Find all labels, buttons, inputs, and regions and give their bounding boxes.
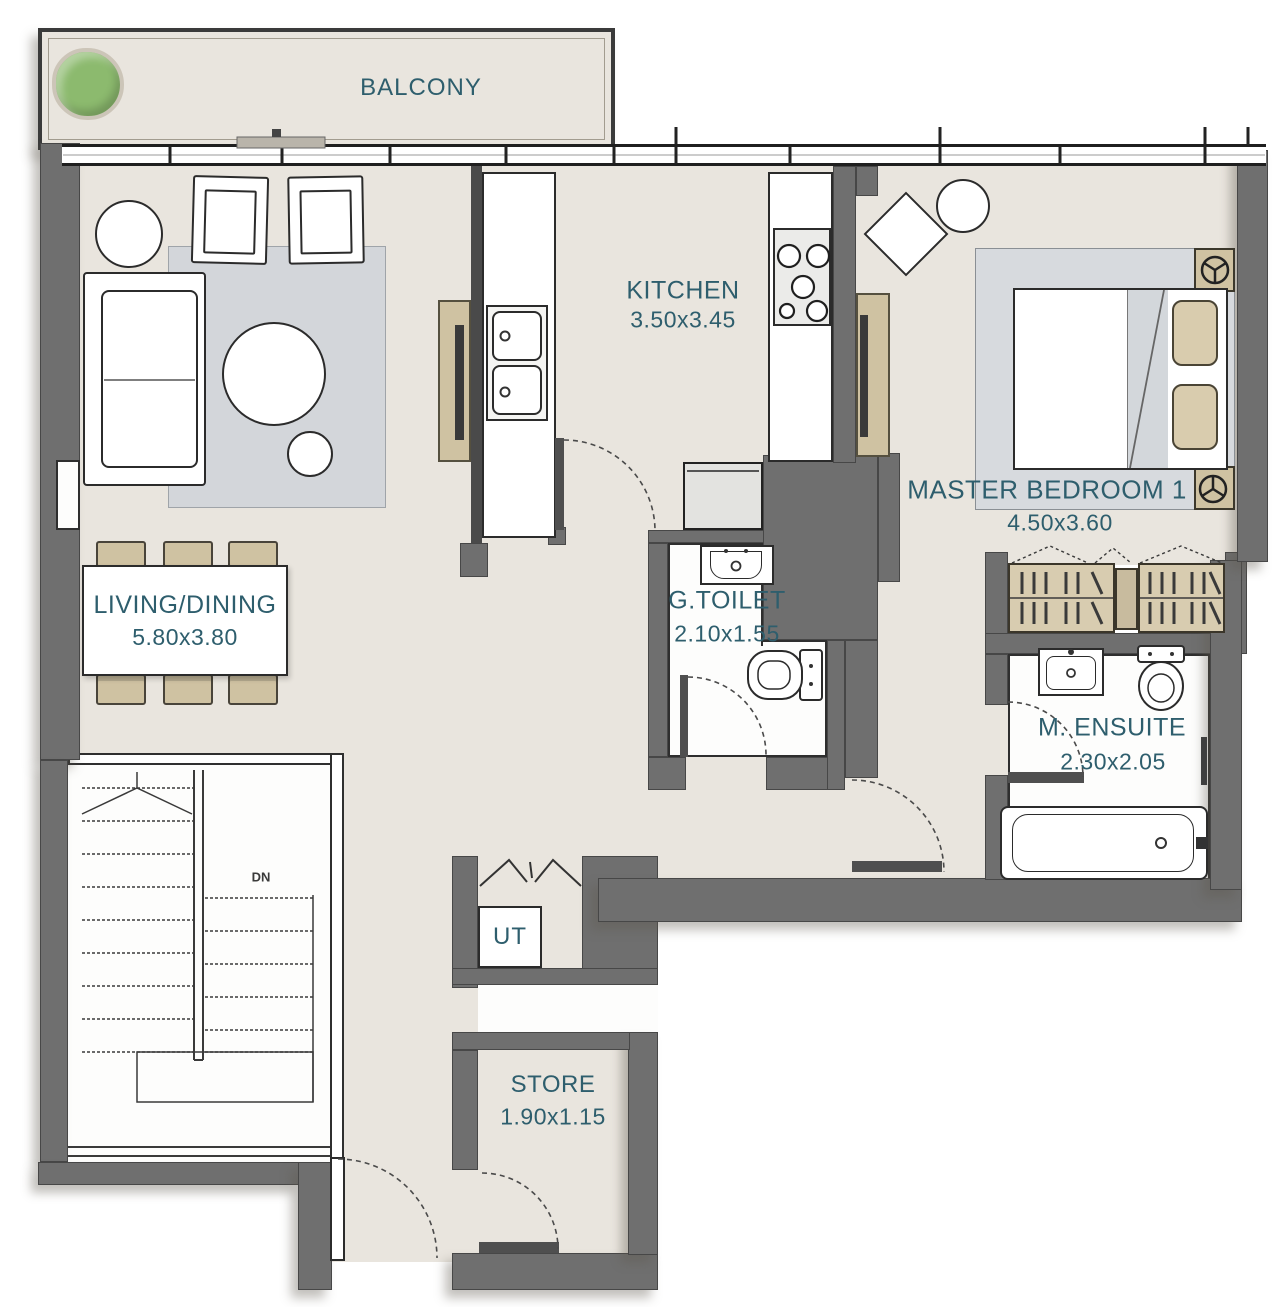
dining-table: LIVING/DINING 5.80x3.80 xyxy=(82,565,288,676)
wardrobe-unit-right xyxy=(1138,563,1225,633)
wall-wardrobe-bottom xyxy=(985,633,1247,654)
store-label: STORE xyxy=(511,1071,596,1099)
bed-duvet-fold xyxy=(1127,290,1168,468)
tv-bedroom xyxy=(860,315,868,437)
window-band-top xyxy=(62,144,1266,166)
living-dining-label: LIVING/DINING xyxy=(94,591,277,620)
wall-store-top xyxy=(452,1032,630,1050)
recess-under-utility xyxy=(478,985,658,1032)
wall-left-outer xyxy=(40,143,80,760)
wall-gtoilet-left xyxy=(648,543,668,757)
floor-ensuite-doorway xyxy=(985,705,1008,775)
floor-plan: LIVING/DINING 5.80x3.80 UT xyxy=(0,0,1280,1307)
balcony-label: BALCONY xyxy=(360,74,482,102)
wall-entry-left-stub xyxy=(298,1162,332,1290)
kitchen-sink-basin-2 xyxy=(492,365,542,415)
master-bedroom-label: MASTER BEDROOM 1 xyxy=(907,475,1187,506)
dining-chair-4 xyxy=(96,674,146,705)
coffee-table-small xyxy=(287,431,333,477)
stairs-dn-label: DN xyxy=(252,870,271,885)
utility-box: UT xyxy=(478,906,542,968)
wall-kitchen-door-stub-a xyxy=(460,543,488,577)
wall-left-stairs xyxy=(40,760,68,1162)
wardrobe-middle xyxy=(1115,568,1138,630)
fridge xyxy=(683,462,763,530)
wall-hall-left-lower xyxy=(845,640,878,778)
wall-gtoilet-right-lower xyxy=(827,640,845,790)
sofa-seat xyxy=(101,290,198,468)
gtoilet-sink-bowl xyxy=(710,551,762,579)
kitchen-dims: 3.50x3.45 xyxy=(630,307,736,334)
bathtub-inner xyxy=(1012,814,1194,872)
window-ticks xyxy=(676,127,1248,145)
armchair-2 xyxy=(287,175,365,264)
kitchen-living-partition xyxy=(471,166,482,545)
gtoilet-interior-lower xyxy=(668,640,827,757)
stairs-right-partition xyxy=(330,753,344,1162)
store-dims: 1.90x1.15 xyxy=(500,1104,606,1131)
kitchen-sink-basin-1 xyxy=(492,311,542,361)
armchair-1-cushion xyxy=(203,189,257,254)
sofa xyxy=(83,272,206,486)
ensuite-label: M. ENSUITE xyxy=(1038,714,1186,743)
wall-bedroom-right xyxy=(1237,150,1268,562)
wall-gtoilet-top xyxy=(648,530,770,543)
wall-stairs-bottom xyxy=(38,1162,300,1185)
balcony-plant xyxy=(52,48,124,120)
wall-kitchen-bedroom-stub xyxy=(856,166,878,196)
ensuite-dims: 2.30x2.05 xyxy=(1060,749,1166,776)
bed-pillow-2 xyxy=(1172,384,1218,450)
coffee-table-round xyxy=(222,322,326,426)
stairs-top-partition xyxy=(68,753,344,765)
bed-pillow-1 xyxy=(1172,300,1218,366)
side-table-round xyxy=(95,200,163,268)
gtoilet-label: G.TOILET xyxy=(668,587,785,616)
nightstand-bottom xyxy=(1194,466,1235,510)
wall-bottom-entry xyxy=(452,1253,658,1290)
wall-gtoilet-bottom-left xyxy=(648,757,686,790)
ensuite-sink-bowl xyxy=(1046,656,1096,690)
gtoilet-dims: 2.10x1.55 xyxy=(674,621,780,648)
wall-ensuite-left-top xyxy=(985,654,1008,705)
living-dining-dims: 5.80x3.80 xyxy=(132,624,238,651)
wall-store-right xyxy=(628,1032,658,1255)
wall-store-left xyxy=(452,1050,478,1170)
wardrobe-unit-left xyxy=(1008,563,1115,633)
nightstand-top xyxy=(1194,248,1235,292)
armchair-1 xyxy=(191,175,269,265)
wall-bedroom-corner-chunk xyxy=(878,453,900,582)
balcony-inner-line xyxy=(48,38,605,140)
stove xyxy=(773,228,831,326)
master-bedroom-dims: 4.50x3.60 xyxy=(1007,510,1113,537)
stairs-interior xyxy=(68,765,330,1162)
fridge-handle xyxy=(687,470,759,472)
bedroom-table-round xyxy=(936,179,990,233)
tv-living xyxy=(455,325,464,440)
balcony-room xyxy=(38,28,615,150)
utility-label: UT xyxy=(493,923,527,951)
wall-kitchen-bedroom xyxy=(833,166,856,463)
dining-chair-6 xyxy=(228,674,278,705)
left-wall-window-notch xyxy=(56,460,80,530)
dining-chair-5 xyxy=(163,674,213,705)
wall-utility-bottom xyxy=(452,968,658,985)
kitchen-label: KITCHEN xyxy=(626,277,739,306)
wall-bottom-hall-ensuite xyxy=(598,878,1242,922)
armchair-2-cushion xyxy=(299,190,352,255)
